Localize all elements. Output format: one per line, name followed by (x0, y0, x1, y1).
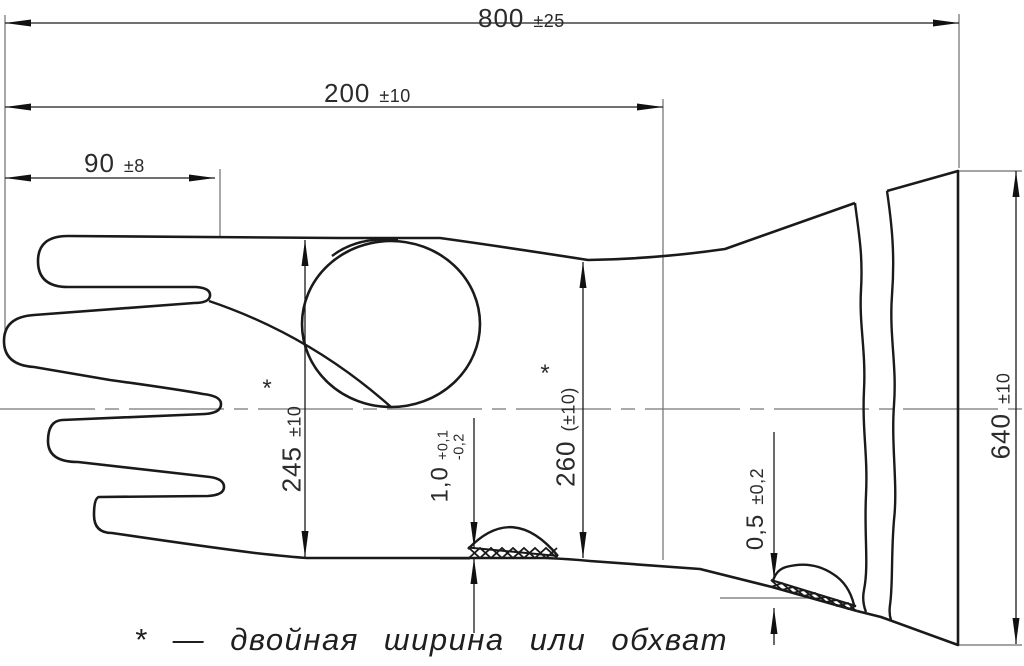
arrow-245-bottom (302, 531, 309, 557)
arrow-800-left (5, 20, 31, 27)
arrow-1-0-bottom (471, 558, 478, 584)
footnote-text: * — двойная ширина или обхват (134, 622, 728, 658)
dim-1-0-tolerance-plus: +0,1 (435, 430, 451, 461)
arrow-90-right (189, 175, 215, 182)
arrow-245-top (302, 240, 309, 266)
dim-200-label: 200 ±10 (324, 78, 411, 109)
arrow-640-top (1013, 171, 1020, 197)
dim-245-value: 245 (277, 446, 308, 492)
arrow-200-left (5, 104, 31, 111)
drawing-canvas: 800 ±25 200 ±10 90 ±8 245 ±10 * 260 (±10… (0, 0, 1024, 666)
dim-1-0-tolerance-stack: +0,1 -0,2 (435, 430, 467, 461)
dim-0-5-tolerance: ±0,2 (747, 468, 768, 505)
arrow-260-bottom (580, 532, 587, 558)
arrow-800-right (933, 20, 959, 27)
arrow-640-bottom (1013, 618, 1020, 644)
dim-640-label: 640 ±10 (986, 373, 1017, 460)
dim-1-0-tolerance-minus: -0,2 (452, 430, 468, 461)
dim-1-0-value: 1,0 (426, 466, 454, 502)
extension-lines (5, 14, 1022, 645)
cuff-outline (857, 171, 958, 645)
dim-90-tolerance: ±8 (124, 156, 145, 177)
dim-260-asterisk: * (540, 360, 549, 388)
dim-260-label: 260 (±10) (551, 387, 582, 487)
dim-0-5-label: 0,5 ±0,2 (742, 468, 770, 550)
dim-90-label: 90 ±8 (84, 148, 145, 179)
arrow-200-right (637, 104, 663, 111)
dim-245-tolerance: ±10 (285, 406, 306, 437)
arrow-260-top (580, 262, 587, 288)
dim-1-0-label: 1,0 +0,1 -0,2 (426, 430, 467, 503)
dim-640-value: 640 (986, 413, 1017, 459)
dim-800-tolerance: ±25 (533, 11, 564, 32)
reinforcement-patch-cuff (771, 565, 856, 611)
dim-260-value: 260 (551, 441, 582, 487)
palm-seam-line (209, 301, 391, 407)
reinforcement-patch-palm (468, 527, 558, 558)
dim-245-asterisk: * (262, 375, 271, 403)
dim-90-value: 90 (84, 148, 115, 179)
dim-200-value: 200 (324, 78, 370, 109)
dim-200-tolerance: ±10 (379, 86, 410, 107)
cuff-roll-wavy-line-2 (887, 191, 895, 620)
glove-outline (4, 203, 857, 611)
technical-drawing-svg (0, 0, 1024, 666)
dim-0-5-value: 0,5 (742, 514, 770, 550)
thumb-circle (302, 241, 480, 407)
cuff-roll-wavy-line-1 (855, 203, 866, 612)
arrow-0-5-bottom (771, 608, 778, 634)
dim-800-label: 800 ±25 (478, 3, 565, 34)
dim-260-tolerance: (±10) (559, 387, 580, 431)
dim-800-value: 800 (478, 3, 524, 34)
arrow-90-left (5, 175, 31, 182)
dim-640-tolerance: ±10 (994, 373, 1015, 404)
dim-245-label: 245 ±10 (277, 406, 308, 493)
